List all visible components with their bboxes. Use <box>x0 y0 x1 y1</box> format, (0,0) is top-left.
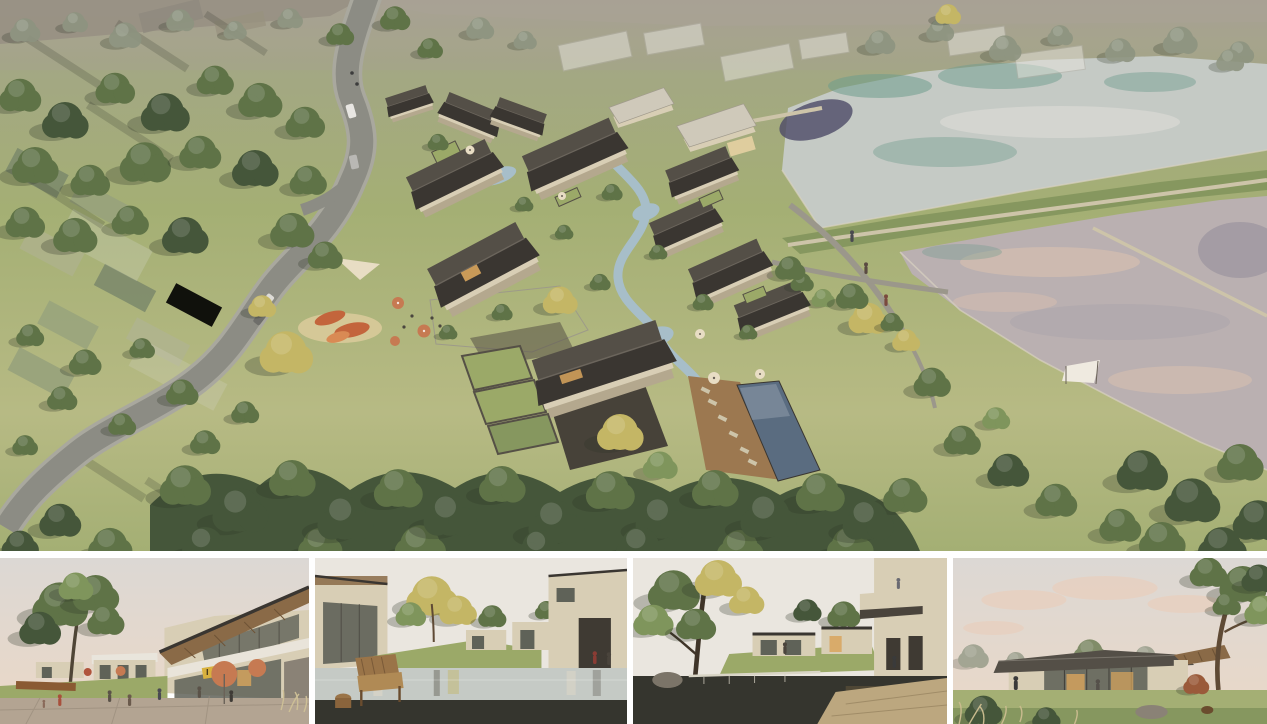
right-villa <box>548 570 627 670</box>
glass-pavilion-scene <box>953 558 1267 724</box>
aerial-masterplan-render <box>0 0 1267 551</box>
rock <box>652 672 682 688</box>
thumbnail-strip <box>0 558 1267 724</box>
thumbnail-plaza-cafe <box>0 558 309 724</box>
plaza-cafe-scene <box>0 558 309 724</box>
reflecting-pool-scene <box>315 558 627 724</box>
thumbnail-pond-courtyard <box>633 558 947 724</box>
boulder <box>1135 705 1167 719</box>
thumbnail-reflecting-pool <box>315 558 627 724</box>
stump <box>1201 706 1213 714</box>
rendering-collage <box>0 0 1267 724</box>
thumbnail-glass-pavilion <box>953 558 1267 724</box>
aerial-scene <box>0 0 1267 551</box>
pond-courtyard-scene <box>633 558 947 724</box>
